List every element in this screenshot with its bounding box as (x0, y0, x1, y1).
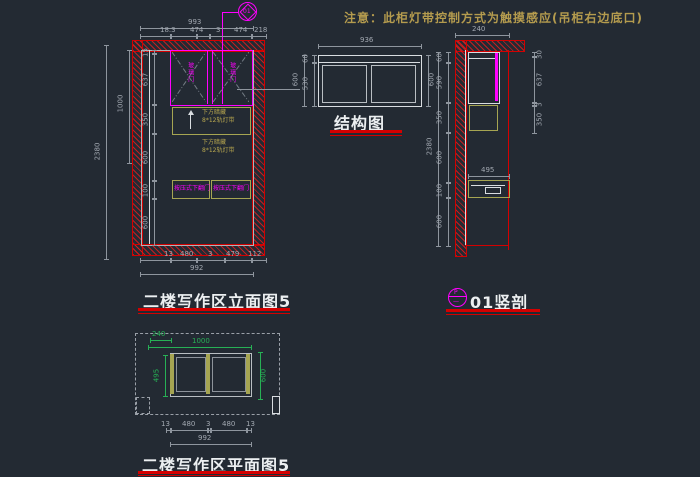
dim-line (140, 258, 172, 263)
dim-line (251, 34, 267, 39)
dim-line (468, 174, 510, 179)
section-wall-right-line (508, 50, 509, 250)
dim-text: 3 (206, 421, 210, 428)
structure-dim-top: 936 (360, 37, 373, 44)
structure-pane-right (371, 65, 416, 103)
door-right-label: 玻璃门 (228, 62, 235, 83)
section-drawer-detail-line (471, 185, 505, 186)
dim-line (455, 33, 510, 38)
title-underline-thin (330, 135, 402, 136)
title-underline-thick (138, 308, 290, 311)
dim-line (170, 258, 198, 263)
dim-line (170, 428, 209, 433)
cad-canvas: 注意：此柜灯带控制方式为触摸感应(吊柜右边底口) 玻璃门 玻璃门 01 下方暗藏… (0, 0, 700, 477)
dim-text: 474 (234, 27, 247, 34)
plan-dim-bottom-overall: 992 (198, 435, 211, 442)
dim-text: 218 (254, 27, 267, 34)
dim-line (140, 272, 254, 277)
plan-dim-green-short: 240 (152, 331, 165, 338)
plan-dim-green-right: 600 (261, 356, 268, 396)
section-bubble-top: P (454, 290, 458, 296)
section-dim-left-outer: 2380 (427, 127, 434, 167)
section-cabinet-top-rail (468, 58, 498, 59)
plan-cabinet-side-left (170, 354, 174, 394)
structure-top-rail (318, 62, 420, 63)
section-dim-drawer: 495 (481, 167, 494, 174)
dim-text: 590 (437, 63, 444, 103)
dim-text: 3 (208, 251, 212, 258)
dim-line (152, 198, 157, 246)
dim-line (246, 428, 252, 433)
title-underline-thick (446, 309, 540, 312)
niche-note-line2: 8*12轨灯带 (202, 147, 234, 155)
structure-leader-line (237, 89, 300, 90)
dim-line (163, 355, 168, 397)
dim-text: 350 (143, 100, 150, 140)
dim-text: 530 (303, 64, 310, 104)
niche-label-below: 下方暗藏 8*12轨灯带 (202, 139, 234, 156)
dim-text: 600 (143, 203, 150, 243)
dim-text: 479 (226, 251, 239, 258)
plan-cabinet-divider (206, 354, 210, 394)
dim-text: 480 (222, 421, 235, 428)
structure-dim-right: 600 (429, 60, 436, 100)
plan-door-jamb (272, 396, 280, 414)
dim-line (446, 197, 451, 247)
section-glass-door-edge (495, 53, 498, 101)
drawer-left-label: 按压式下翻门 (174, 186, 210, 192)
dim-text: 480 (182, 421, 195, 428)
dim-line (170, 442, 252, 447)
section-dim-top: 240 (472, 26, 485, 33)
dim-line (210, 428, 248, 433)
plan-wall-step (136, 397, 150, 414)
section-niche (469, 105, 498, 131)
dim-text: 18.3 (160, 27, 176, 34)
dim-text: 474 (190, 27, 203, 34)
dim-line (104, 45, 109, 260)
dim-text: 3 (216, 27, 220, 34)
structure-dim-left-outer: 600 (293, 60, 300, 100)
dim-text: 13 (161, 421, 170, 428)
dim-line (148, 345, 252, 350)
dim-line (446, 62, 451, 104)
section-wall-face-line (465, 50, 466, 245)
dim-left-mid: 1000 (118, 84, 125, 124)
dim-line (170, 34, 198, 39)
dim-line (152, 180, 157, 200)
dim-line (152, 104, 157, 135)
arrow-up-icon (188, 110, 194, 115)
plan-dim-green-left: 495 (154, 356, 161, 396)
dim-text: 112 (248, 251, 261, 258)
dim-left-outer: 2380 (95, 132, 102, 172)
plan-pane-left (176, 357, 206, 392)
drawer-right-label: 按压式下翻门 (213, 186, 249, 192)
plan-cabinet-side-right (246, 354, 250, 394)
dim-line (127, 50, 132, 164)
dim-line (312, 62, 317, 107)
dim-line (446, 102, 451, 134)
section-bubble-bottom: — (453, 299, 459, 305)
section-drawer-runner (485, 187, 501, 194)
dim-line (224, 258, 253, 263)
niche-label-line2: 8*12轨灯带 (202, 117, 234, 125)
detail-callout-number: 01 (243, 9, 251, 15)
dim-line (150, 338, 172, 343)
niche-label-inside: 下方暗藏 8*12轨灯带 (202, 109, 234, 126)
title-underline-thick (330, 130, 402, 133)
title-underline-thick (138, 471, 290, 474)
dim-bottom-overall: 992 (190, 265, 203, 272)
section-bubble-divider (448, 296, 467, 297)
dim-text: 350 (537, 100, 544, 140)
dim-text: 13 (164, 251, 173, 258)
dim-line (152, 133, 157, 182)
dim-line (196, 258, 226, 263)
dim-text: 13 (246, 421, 255, 428)
dim-top-overall: 993 (188, 19, 201, 26)
dim-text: 480 (180, 251, 193, 258)
structure-pane-left (322, 65, 367, 103)
section-cut-leader (222, 12, 239, 13)
dim-line (318, 44, 422, 49)
door-left-label: 玻璃门 (186, 62, 193, 83)
dim-text: 637 (143, 60, 150, 100)
dim-text: 350 (437, 98, 444, 138)
note-text: 注意：此柜灯带控制方式为触摸感应(吊柜右边底口) (344, 9, 643, 26)
title-underline-thin (446, 314, 540, 315)
title-underline-thin (138, 475, 290, 476)
dim-line (152, 53, 157, 106)
dim-line (251, 258, 267, 263)
plan-pane-right (212, 357, 246, 392)
arrow-stem (190, 114, 191, 129)
dim-line (209, 34, 253, 39)
plan-dim-green-long: 1000 (192, 338, 210, 345)
dim-text: 600 (437, 202, 444, 242)
title-underline-thin (138, 313, 290, 314)
dim-line (446, 132, 451, 184)
section-floor-line (465, 245, 509, 246)
